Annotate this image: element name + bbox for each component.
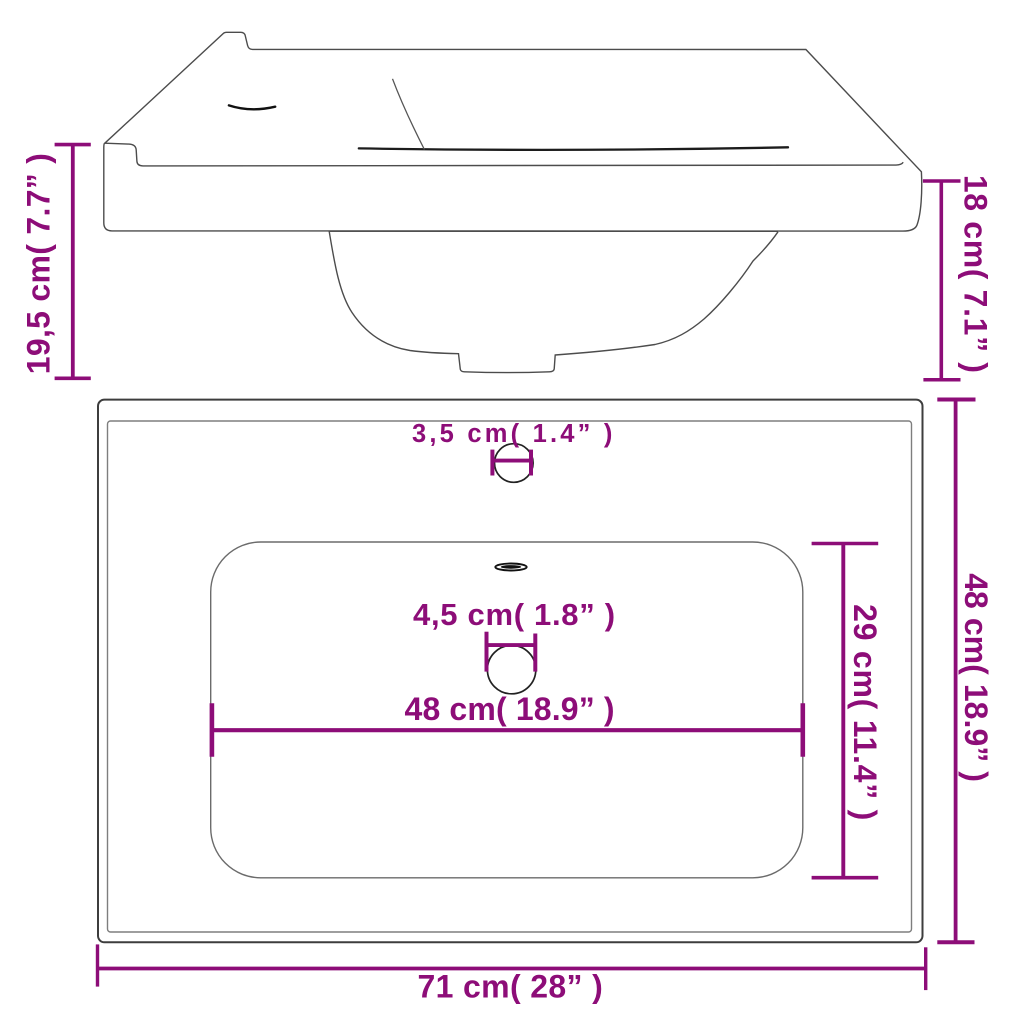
svg-text:18 cm( 7.1” ): 18 cm( 7.1” ): [957, 175, 993, 374]
svg-text:3,5 cm( 1.4” ): 3,5 cm( 1.4” ): [412, 420, 616, 448]
svg-text:4,5 cm( 1.8” ): 4,5 cm( 1.8” ): [413, 597, 616, 632]
svg-text:48 cm( 18.9” ): 48 cm( 18.9” ): [958, 573, 994, 782]
svg-text:48 cm( 18.9” ): 48 cm( 18.9” ): [405, 691, 615, 727]
svg-text:71 cm( 28” ): 71 cm( 28” ): [418, 969, 604, 1005]
svg-text:29 cm( 11.4” ): 29 cm( 11.4” ): [847, 604, 883, 821]
svg-text:19,5 cm( 7.7” ): 19,5 cm( 7.7” ): [21, 153, 57, 375]
